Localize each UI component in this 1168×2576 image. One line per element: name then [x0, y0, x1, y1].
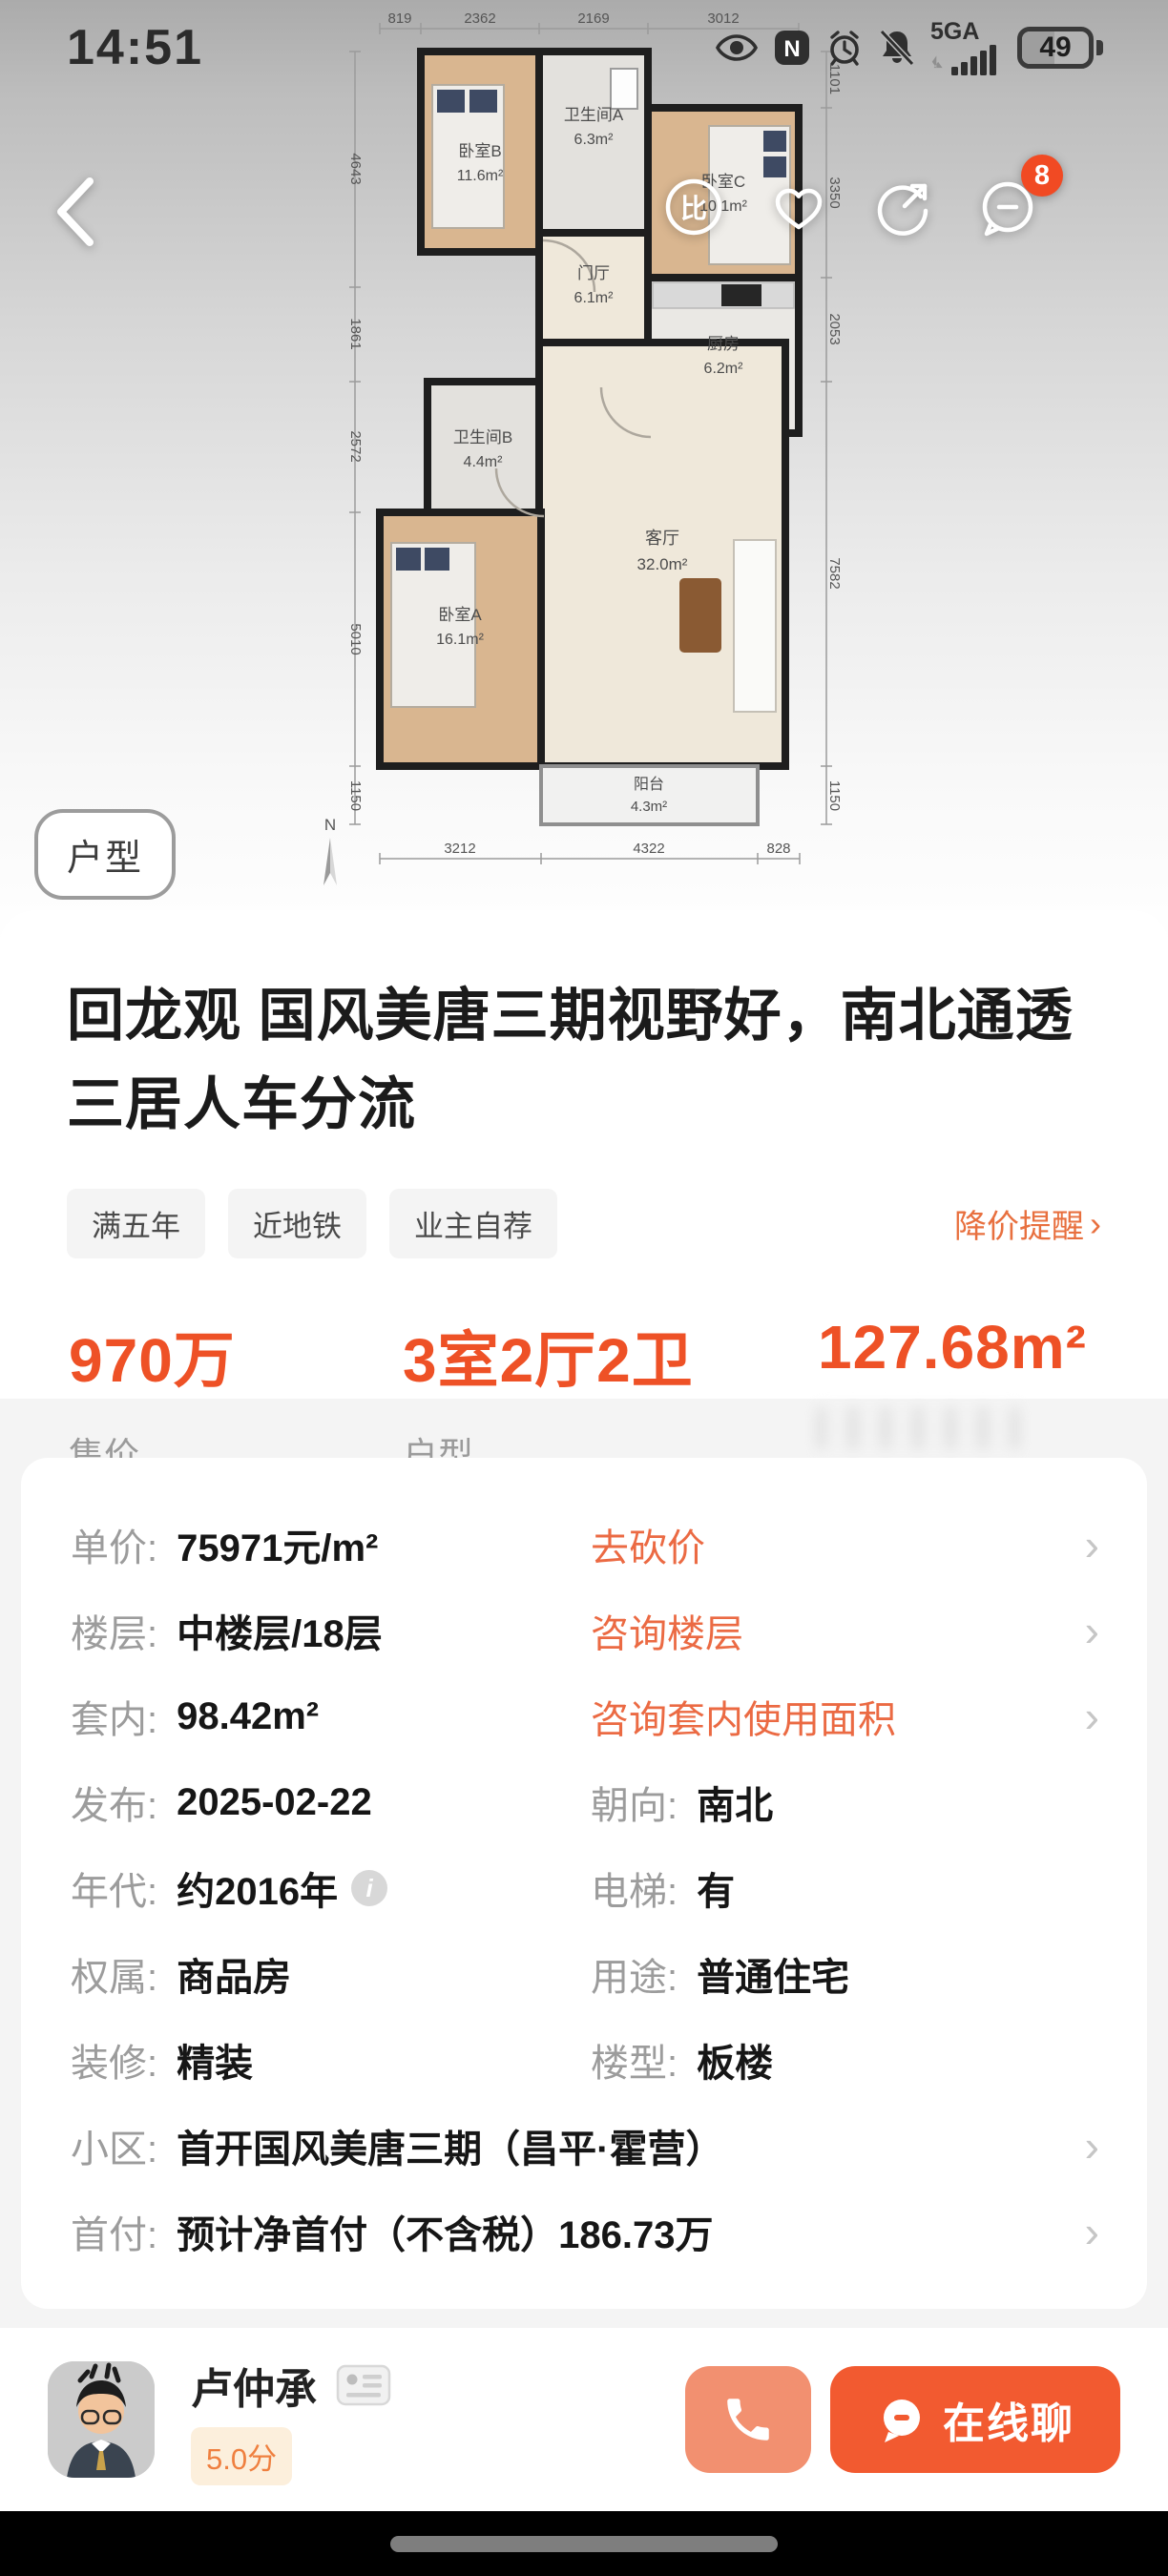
svg-text:828: 828: [766, 841, 790, 857]
chevron-right-icon[interactable]: ›: [1085, 2206, 1099, 2257]
blurred-area-label: [818, 1407, 1018, 1449]
svg-text:卫生间A: 卫生间A: [564, 106, 624, 124]
battery-percent: 49: [1039, 31, 1071, 64]
compare-button[interactable]: 比: [662, 176, 725, 239]
chevron-right-icon[interactable]: ›: [1085, 1605, 1099, 1656]
svg-text:2053: 2053: [826, 313, 843, 344]
area-value: 127.68m²: [818, 1312, 1099, 1382]
chevron-right-icon: ›: [1090, 1204, 1101, 1244]
svg-text:4.4m²: 4.4m²: [464, 454, 504, 470]
hero-photo-area: 卧室B11.6m² 卫生间A6.3m² 卧室C10.1m² 门厅6.1m² 厨房…: [0, 0, 1168, 945]
layout-value: 3室2厅2卫: [403, 1312, 818, 1400]
bell-muted-icon: [878, 29, 916, 67]
info-icon[interactable]: i: [351, 1870, 387, 1906]
network-indicator: 5GA: [930, 20, 1003, 76]
eye-icon: [715, 32, 759, 63]
status-bar: 14:51 N: [0, 0, 1168, 95]
message-button[interactable]: 8: [977, 176, 1040, 239]
bargain-link[interactable]: 去砍价: [591, 1517, 705, 1572]
ask-inner-area-link[interactable]: 咨询套内使用面积: [591, 1689, 896, 1744]
alarm-icon: [825, 29, 864, 67]
svg-text:6.3m²: 6.3m²: [574, 132, 615, 148]
floor-plan-image[interactable]: 卧室B11.6m² 卫生间A6.3m² 卧室C10.1m² 门厅6.1m² 厨房…: [275, 13, 905, 901]
price-drop-alert-link[interactable]: 降价提醒›: [954, 1200, 1101, 1247]
chevron-right-icon[interactable]: ›: [1085, 2120, 1099, 2171]
svg-text:4643: 4643: [347, 153, 364, 184]
svg-text:N: N: [783, 36, 800, 62]
network-type-label: 5GA: [930, 20, 979, 44]
chevron-right-icon[interactable]: ›: [1085, 1691, 1099, 1742]
nfc-icon: N: [773, 29, 811, 67]
svg-text:6.1m²: 6.1m²: [574, 290, 615, 306]
call-button[interactable]: [685, 2366, 811, 2473]
detail-row-floor: 楼层: 中楼层/18层 咨询楼层 ›: [71, 1588, 1109, 1673]
floorplan-tab-badge[interactable]: 户型: [34, 809, 176, 900]
svg-text:卧室A: 卧室A: [438, 606, 482, 624]
svg-text:4322: 4322: [633, 841, 664, 857]
ask-floor-link[interactable]: 咨询楼层: [591, 1603, 743, 1658]
detail-row-downpayment[interactable]: 首付: 预计净首付（不含税）186.73万 ›: [71, 2189, 1109, 2275]
detail-row-year: 年代: 约2016年 i 电梯: 有: [71, 1845, 1109, 1931]
compass-icon: N: [323, 816, 337, 885]
app-screen: 卧室B11.6m² 卫生间A6.3m² 卧室C10.1m² 门厅6.1m² 厨房…: [0, 0, 1168, 2576]
svg-text:6.2m²: 6.2m²: [704, 361, 744, 377]
details-card: 单价: 75971元/m² 去砍价 › 楼层: 中楼层/18层 咨询楼层 › 套…: [21, 1458, 1147, 2309]
detail-row-inner-area: 套内: 98.42m² 咨询套内使用面积 ›: [71, 1673, 1109, 1759]
svg-text:7582: 7582: [826, 557, 843, 589]
clock-time: 14:51: [67, 19, 203, 76]
svg-text:4.3m²: 4.3m²: [631, 799, 667, 815]
svg-text:比: 比: [680, 194, 707, 223]
agent-name: 卢仲承: [191, 2355, 317, 2416]
svg-text:N: N: [324, 816, 336, 834]
agent-contact-bar: 卢仲承 5.0分 在线聊: [0, 2328, 1168, 2511]
svg-text:客厅: 客厅: [645, 529, 679, 548]
id-card-icon[interactable]: [336, 2361, 391, 2409]
share-icon[interactable]: [872, 176, 935, 239]
detail-row-published: 发布: 2025-02-22 朝向: 南北: [71, 1759, 1109, 1845]
phone-icon: [720, 2392, 776, 2447]
home-indicator[interactable]: [390, 2536, 778, 2552]
svg-text:卧室B: 卧室B: [458, 142, 501, 160]
tag-over-five-years: 满五年: [67, 1189, 205, 1258]
online-chat-button[interactable]: 在线聊: [830, 2366, 1120, 2473]
detail-row-community[interactable]: 小区: 首开国风美唐三期（昌平·霍营） ›: [71, 2103, 1109, 2189]
svg-text:1150: 1150: [347, 780, 364, 811]
detail-row-unit-price: 单价: 75971元/m² 去砍价 ›: [71, 1502, 1109, 1588]
nav-actions: 比 8: [662, 176, 1040, 239]
chat-bubble-icon: [876, 2394, 928, 2445]
favorite-heart-icon[interactable]: [767, 176, 830, 239]
svg-text:3212: 3212: [444, 841, 475, 857]
battery-icon: 49: [1017, 26, 1109, 70]
tag-near-subway: 近地铁: [228, 1189, 366, 1258]
svg-text:厨房: 厨房: [707, 335, 740, 353]
svg-text:卫生间B: 卫生间B: [453, 428, 512, 447]
detail-row-ownership: 权属: 商品房 用途: 普通住宅: [71, 1931, 1109, 2017]
svg-text:32.0m²: 32.0m²: [637, 555, 688, 573]
price-summary-row: 970万 售价 3室2厅2卫 户型 127.68m²: [67, 1312, 1101, 1478]
agent-avatar[interactable]: [48, 2361, 155, 2478]
system-nav-strip: [0, 2511, 1168, 2576]
back-button[interactable]: [46, 172, 103, 252]
tag-owner-recommended: 业主自荐: [389, 1189, 557, 1258]
svg-text:阳台: 阳台: [634, 776, 664, 793]
listing-title: 回龙观 国风美唐三期视野好，南北通透三居人车分流: [67, 971, 1101, 1149]
details-section: 单价: 75971元/m² 去砍价 › 楼层: 中楼层/18层 咨询楼层 › 套…: [0, 1458, 1168, 2328]
message-count-badge: 8: [1021, 155, 1063, 197]
tag-row: 满五年 近地铁 业主自荐 降价提醒›: [67, 1189, 1101, 1258]
agent-rating-badge: 5.0分: [191, 2427, 292, 2485]
detail-row-decoration: 装修: 精装 楼型: 板楼: [71, 2017, 1109, 2103]
svg-text:11.6m²: 11.6m²: [457, 168, 504, 184]
svg-text:2572: 2572: [347, 430, 364, 462]
svg-text:1150: 1150: [826, 780, 843, 811]
svg-text:5010: 5010: [347, 623, 364, 654]
title-card: 回龙观 国风美唐三期视野好，南北通透三居人车分流 满五年 近地铁 业主自荐 降价…: [0, 910, 1168, 1399]
svg-text:1861: 1861: [347, 318, 364, 349]
svg-text:门厅: 门厅: [577, 264, 610, 282]
chevron-right-icon[interactable]: ›: [1085, 1519, 1099, 1570]
price-value: 970万: [69, 1312, 403, 1400]
svg-text:16.1m²: 16.1m²: [436, 632, 484, 648]
